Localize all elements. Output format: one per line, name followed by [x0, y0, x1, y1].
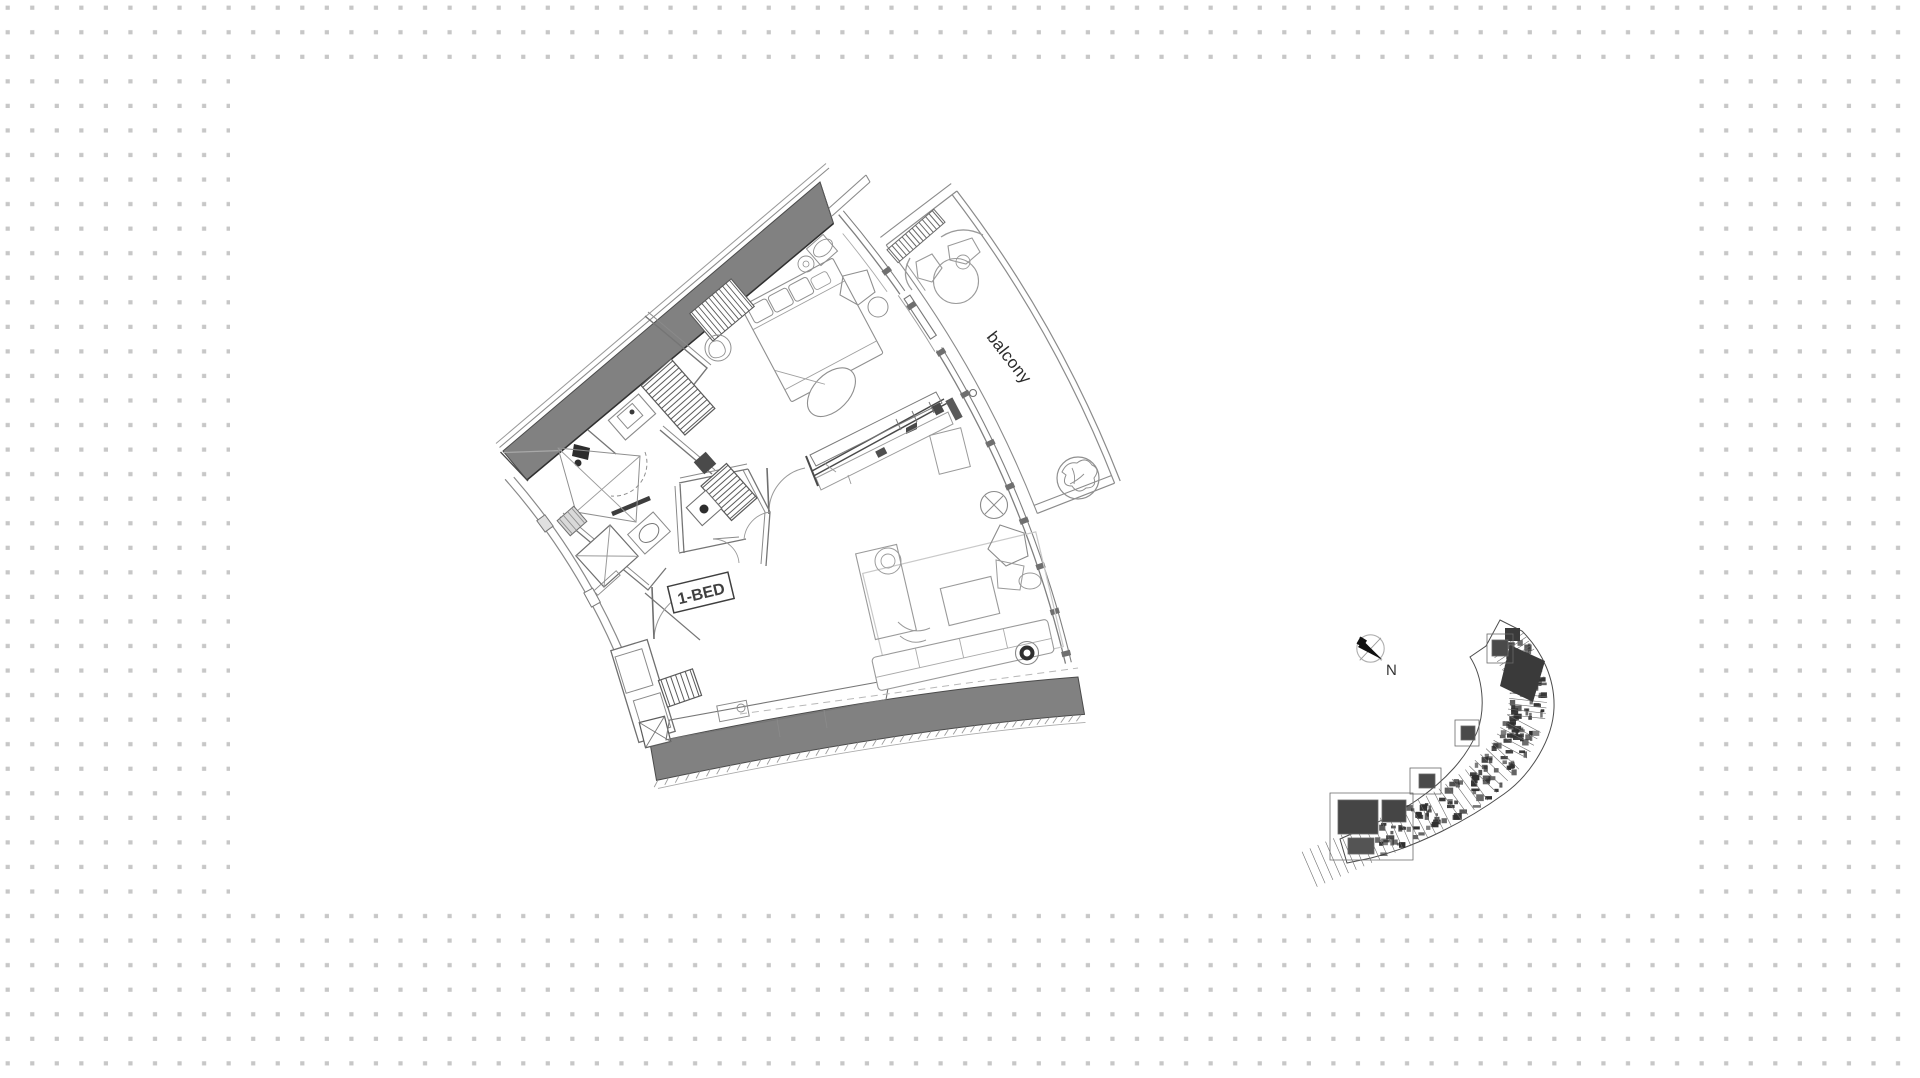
svg-text:N: N: [1386, 662, 1397, 679]
